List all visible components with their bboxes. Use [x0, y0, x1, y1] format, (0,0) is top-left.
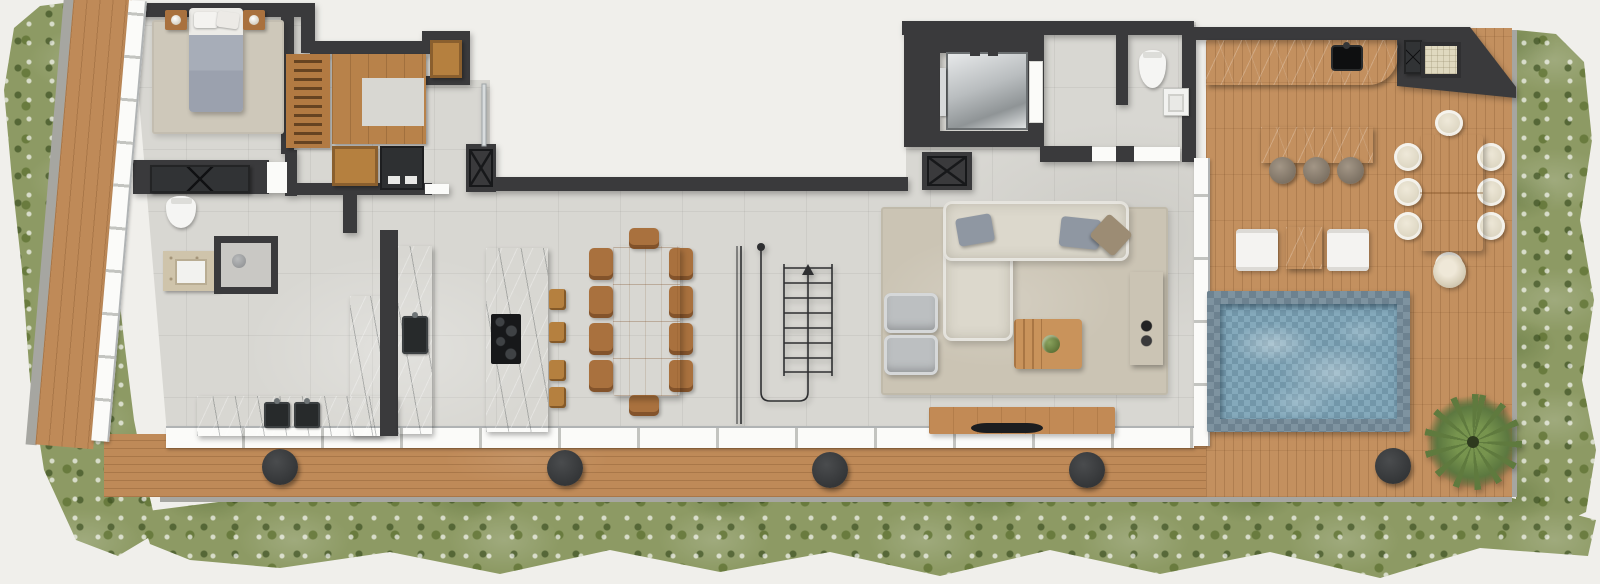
powder-toilet: [1139, 50, 1166, 88]
armchair-2: [884, 335, 938, 375]
terrace-planter-box: [1421, 42, 1461, 78]
outdoor-sink: [1331, 45, 1363, 71]
kitchen-prep-sink: [402, 316, 428, 354]
kitchen-tall-cabinet: [380, 230, 398, 436]
wardrobe-rack: [286, 54, 330, 148]
bedroom-dresser: [150, 165, 250, 193]
dining-chair-head-bottom: [629, 395, 659, 416]
lounge-chair-1: [1236, 229, 1278, 271]
bar-stool-3: [549, 360, 566, 381]
deck-light-2: [547, 450, 583, 486]
terrace-dining-table: [1420, 135, 1483, 251]
laundry-unit: [380, 146, 424, 190]
terrace-chair-2: [1394, 178, 1422, 206]
outdoor-kitchen-counter: [1206, 40, 1398, 85]
cooktop: [491, 314, 521, 364]
kitchen-sink-right: [294, 402, 320, 428]
terrace-duct: [1404, 40, 1422, 74]
tv: [971, 423, 1043, 433]
bar-stool-4: [549, 387, 566, 408]
deck-light-3: [812, 452, 848, 488]
kitchen-counter-side: [350, 296, 382, 436]
media-console: [1130, 272, 1163, 365]
floor-plan-canvas: [0, 0, 1600, 584]
bar-stool-2: [549, 322, 566, 343]
dining-chair-1: [589, 248, 613, 280]
closet-bench: [332, 146, 378, 186]
elevator-door: [1030, 62, 1042, 122]
pool: [1207, 291, 1410, 432]
bathroom-toilet: [166, 196, 196, 228]
bar-stool-1: [549, 289, 566, 310]
dining-chair-3: [589, 323, 613, 355]
elevator-cab: [946, 52, 1028, 130]
round-planter: [1433, 255, 1466, 288]
terrace-chair-1: [1394, 143, 1422, 171]
terrace-chair-head-top: [1435, 110, 1463, 136]
armchair-1: [884, 293, 938, 333]
lounge-chair-2: [1327, 229, 1369, 271]
bed: [189, 8, 243, 112]
deck-light-4: [1069, 452, 1105, 488]
bar-round-stool-2: [1303, 157, 1330, 184]
nightstand-right: [243, 10, 265, 30]
lounge-side-table: [1286, 227, 1322, 269]
dining-chair-4: [589, 360, 613, 392]
bar-round-stool-1: [1269, 157, 1296, 184]
closet-top-cabinet: [430, 40, 462, 78]
nightstand-left: [165, 10, 187, 30]
coffee-table: [1014, 319, 1082, 369]
deck-light-1: [262, 449, 298, 485]
dining-table: [613, 246, 680, 396]
bar-round-stool-3: [1337, 157, 1364, 184]
shower: [214, 236, 278, 294]
terrace-plant: [1424, 394, 1522, 490]
dining-chair-2: [589, 286, 613, 318]
kitchen-sink-left: [264, 402, 290, 428]
bathroom-vanity: [163, 251, 219, 291]
terrace-chair-3: [1394, 212, 1422, 240]
closet-u-unit: [332, 54, 426, 144]
powder-sink: [1163, 88, 1189, 116]
furniture-layer: [0, 0, 1600, 584]
deck-light-5: [1375, 448, 1411, 484]
